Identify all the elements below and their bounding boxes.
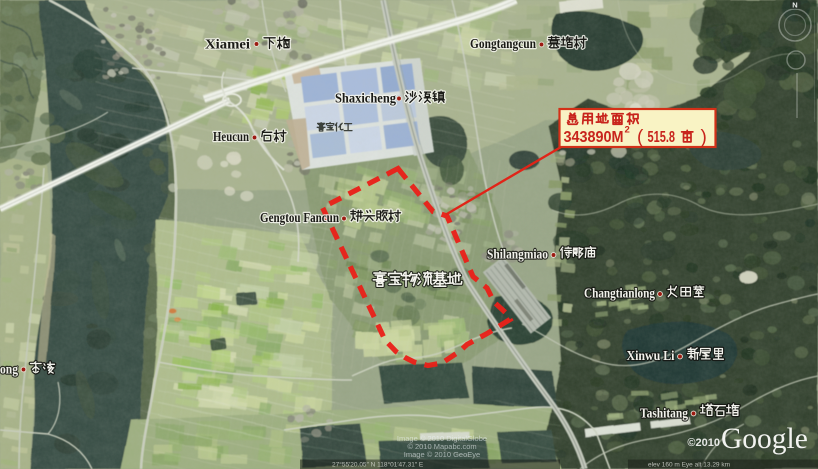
svg-text:©2010: ©2010 (687, 437, 720, 449)
svg-text:2: 2 (625, 125, 630, 136)
svg-text:Gongtangcun: Gongtangcun (470, 36, 536, 51)
svg-text:Changtianlong: Changtianlong (584, 286, 655, 301)
svg-text:Shilangmiao: Shilangmiao (487, 247, 548, 262)
svg-text:ong: ong (0, 362, 18, 377)
svg-text:Shaxicheng: Shaxicheng (335, 92, 396, 107)
svg-text:343890M: 343890M (564, 129, 624, 146)
svg-text:515.8: 515.8 (648, 129, 676, 146)
svg-text:Image © 2010 GeoEye: Image © 2010 GeoEye (404, 450, 480, 459)
svg-text:Xiamei: Xiamei (205, 38, 250, 53)
svg-text:Heucun: Heucun (213, 129, 249, 144)
svg-text:Gengtou Fancun: Gengtou Fancun (260, 210, 339, 225)
svg-text:27°55′20.05″ N 118°01′47.31″: 27°55′20.05″ N 118°01′47.31″ E (332, 461, 424, 469)
svg-text:): ) (701, 127, 707, 148)
svg-text:Google: Google (721, 423, 808, 455)
svg-text:elev 160 m Eye alt 13.29 km: elev 160 m Eye alt 13.29 km (648, 462, 730, 469)
svg-text:(: ( (637, 127, 644, 148)
svg-text:Xinwu Li: Xinwu Li (627, 349, 675, 364)
svg-text:Tashitang: Tashitang (640, 407, 688, 422)
svg-text:N: N (792, 1, 797, 10)
